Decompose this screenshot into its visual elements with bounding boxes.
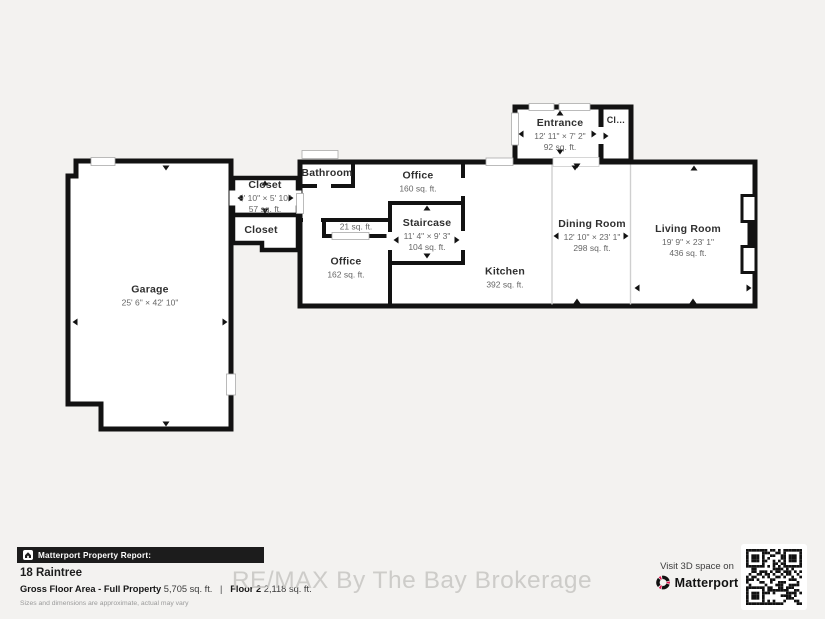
qr-code	[741, 544, 807, 610]
qr-code-svg	[746, 549, 802, 605]
room-dims: 12' 10" × 23' 1"	[558, 232, 626, 243]
gross-area-label: Gross Floor Area - Full Property	[20, 584, 161, 594]
room-label-entrance: Entrance 12' 11" × 7' 2" 92 sq. ft.	[534, 117, 585, 153]
room-name: Dining Room	[558, 218, 626, 232]
matterport-brand: Matterport	[656, 575, 739, 590]
room-label-closet-upper: Closet 9' 10" × 5' 10" 57 sq. ft.	[239, 179, 291, 215]
gross-area-value: 5,705 sq. ft.	[164, 584, 213, 594]
home-icon	[23, 550, 33, 560]
report-title-bar: Matterport Property Report:	[17, 547, 264, 563]
room-label-garage: Garage 25' 6" × 42' 10"	[122, 284, 179, 309]
room-label-closet-entry: Cl…	[607, 115, 626, 127]
room-area: 160 sq. ft.	[399, 183, 436, 194]
room-label-kitchen: Kitchen 392 sq. ft.	[485, 266, 525, 291]
room-label-staircase: Staircase 11' 4" × 9' 3" 104 sq. ft.	[403, 217, 452, 253]
room-label-bathroom: Bathroom	[301, 167, 352, 181]
room-name: Cl…	[607, 115, 626, 127]
room-dims: 9' 10" × 5' 10"	[239, 193, 291, 204]
room-label-office-lower: Office 162 sq. ft.	[327, 256, 364, 281]
report-title: Matterport Property Report:	[38, 551, 151, 560]
matterport-wordmark: Matterport	[675, 576, 739, 590]
floorplan-report: Garage 25' 6" × 42' 10" Closet 9' 10" × …	[0, 0, 825, 619]
room-name: Kitchen	[485, 266, 525, 280]
room-dims: 25' 6" × 42' 10"	[122, 297, 179, 308]
room-dims: 19' 9" × 23' 1"	[655, 237, 721, 248]
room-label-closet-small: 21 sq. ft.	[340, 221, 373, 232]
room-area: 392 sq. ft.	[485, 279, 525, 290]
disclaimer-text: Sizes and dimensions are approximate, ac…	[20, 600, 189, 607]
matterport-logo-icon	[656, 575, 671, 590]
visit-3d-text: Visit 3D space on	[660, 561, 734, 572]
floorplan-drawing	[0, 0, 825, 619]
room-area: 436 sq. ft.	[655, 248, 721, 259]
room-name: Bathroom	[301, 167, 352, 181]
room-area: 21 sq. ft.	[340, 221, 373, 232]
room-name: Staircase	[403, 217, 452, 231]
room-name: Living Room	[655, 223, 721, 237]
room-name: Garage	[122, 284, 179, 298]
metrics-divider: |	[215, 584, 228, 594]
room-label-dining: Dining Room 12' 10" × 23' 1" 298 sq. ft.	[558, 218, 626, 254]
room-area: 298 sq. ft.	[558, 243, 626, 254]
room-name: Entrance	[534, 117, 585, 131]
room-dims: 11' 4" × 9' 3"	[403, 231, 452, 242]
brokerage-watermark: RE/MAX By The Bay Brokerage	[232, 567, 592, 595]
room-area: 162 sq. ft.	[327, 269, 364, 280]
room-name: Closet	[244, 224, 277, 238]
room-area: 57 sq. ft.	[239, 204, 291, 215]
room-dims: 12' 11" × 7' 2"	[534, 131, 585, 142]
room-label-office-upper: Office 160 sq. ft.	[399, 170, 436, 195]
room-label-closet-lower: Closet	[244, 224, 277, 238]
room-name: Office	[399, 170, 436, 184]
room-area: 92 sq. ft.	[534, 142, 585, 153]
room-name: Closet	[239, 179, 291, 193]
property-name: 18 Raintree	[20, 567, 82, 579]
room-label-living: Living Room 19' 9" × 23' 1" 436 sq. ft.	[655, 223, 721, 259]
room-area: 104 sq. ft.	[403, 242, 452, 253]
room-name: Office	[327, 256, 364, 270]
